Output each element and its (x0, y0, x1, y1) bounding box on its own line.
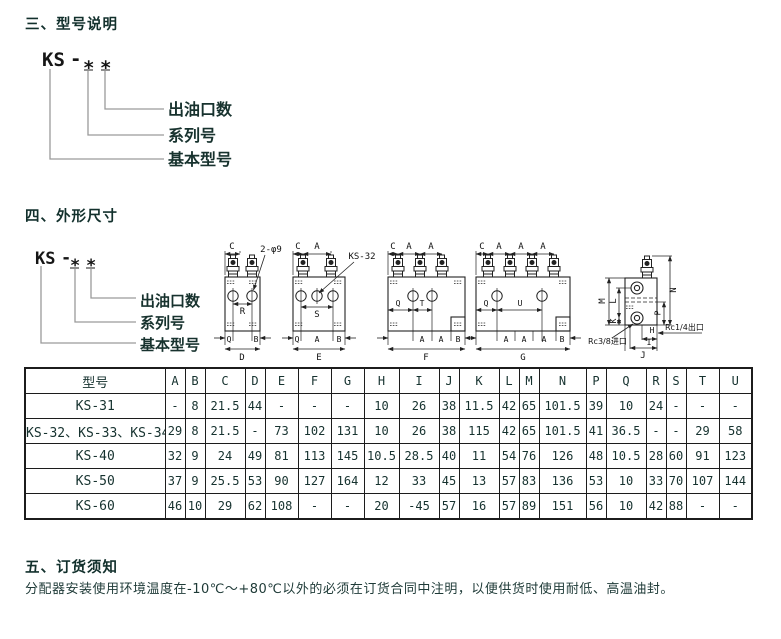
model-designation-diagram-small: KS - * * 出油口数 系列号 基本型号 (30, 244, 240, 356)
outlet-count-label: 出油口数 (168, 100, 233, 119)
dim-cell: 24 (646, 394, 666, 419)
dim-cell: 113 (298, 444, 331, 469)
dim-cell: 41 (586, 419, 606, 444)
col-header: S (666, 368, 686, 394)
model-code-prefix: KS (35, 249, 55, 269)
model-cell: KS-60 (25, 494, 165, 520)
model-cell: KS-32、KS-33、KS-34 (25, 419, 165, 444)
connector-outlet (91, 269, 136, 298)
dim-cell: 108 (265, 494, 298, 520)
dim-cell: 38 (439, 394, 459, 419)
dim-cell: 29 (686, 419, 719, 444)
col-header: L (499, 368, 519, 394)
dim-label: A (542, 335, 547, 344)
dim-cell: 89 (519, 494, 539, 520)
dim-label: C (295, 242, 300, 252)
dim-label: M (598, 298, 608, 304)
dim-label: A (315, 335, 320, 344)
dim-label: A (428, 242, 434, 252)
connector-base (50, 69, 164, 159)
dim-cell: 10.5 (606, 444, 646, 469)
dim-label: B (254, 335, 259, 344)
dim-cell: -45 (399, 494, 439, 520)
dim-cell: 91 (686, 444, 719, 469)
dim-cell: 57 (499, 469, 519, 494)
dim-cell: 83 (519, 469, 539, 494)
dim-cell: 115 (459, 419, 499, 444)
dim-cell: 28.5 (399, 444, 439, 469)
dim-cell: 42 (499, 394, 519, 419)
dim-cell: 11 (459, 444, 499, 469)
dim-label: P (654, 310, 663, 315)
dim-label: A (522, 335, 527, 344)
dim-cell: 53 (245, 469, 265, 494)
dim-cell: 42 (646, 494, 666, 520)
dim-cell: 60 (666, 444, 686, 469)
dim-cell: 8 (185, 419, 205, 444)
dim-label: B (560, 335, 565, 344)
model-code-prefix: KS (42, 49, 65, 71)
dim-label: A (540, 242, 546, 252)
table-row: KS-5037925.55390127164123345135783136531… (25, 469, 752, 494)
col-header: E (265, 368, 298, 394)
dim-cell: 25.5 (205, 469, 245, 494)
base-model-label: 基本型号 (139, 336, 200, 354)
dim-cell: 42 (499, 419, 519, 444)
dim-cell: 10 (364, 419, 399, 444)
dim-cell: 10.5 (364, 444, 399, 469)
dim-cell: 90 (265, 469, 298, 494)
col-header: M (519, 368, 539, 394)
dim-cell: - (719, 394, 752, 419)
dim-cell: - (686, 394, 719, 419)
dim-label: L (609, 298, 619, 303)
col-header: Q (606, 368, 646, 394)
col-header: F (298, 368, 331, 394)
dim-label: C (390, 242, 395, 252)
drawing-ks32: C A KS-32 S Q A B E (282, 242, 376, 363)
dim-cell: 40 (439, 444, 459, 469)
model-callout: KS-32 (348, 252, 375, 262)
dim-label: Q (227, 335, 232, 344)
dim-cell: 20 (364, 494, 399, 520)
dim-label: E (316, 353, 321, 363)
dim-cell: - (165, 394, 185, 419)
model-designation-diagram: KS - * * 出油口数 系列号 基本型号 (38, 44, 268, 176)
dim-cell: 62 (245, 494, 265, 520)
col-header: P (586, 368, 606, 394)
dim-cell: 127 (298, 469, 331, 494)
dim-cell: 10 (606, 394, 646, 419)
col-header: U (719, 368, 752, 394)
dim-cell: 11.5 (459, 394, 499, 419)
col-header: T (686, 368, 719, 394)
dim-cell: 131 (331, 419, 364, 444)
dim-cell: 45 (439, 469, 459, 494)
dim-label: A (406, 242, 412, 252)
inlet-port-label: Rc3/8进口 (588, 337, 627, 346)
dim-cell: 65 (519, 419, 539, 444)
dim-cell: 123 (719, 444, 752, 469)
dim-cell: 10 (364, 394, 399, 419)
dim-cell: 54 (499, 444, 519, 469)
dim-label: N (669, 287, 679, 292)
holes-callout: 2-φ9 (260, 245, 282, 255)
col-header: B (185, 368, 205, 394)
dim-cell: 70 (666, 469, 686, 494)
dim-cell: - (666, 419, 686, 444)
table-row: KS-32、KS-33、KS-3429821.5-731021311026381… (25, 419, 752, 444)
dim-cell: - (686, 494, 719, 520)
dim-label: B (456, 335, 461, 344)
dim-cell: 58 (719, 419, 752, 444)
dim-label: J (640, 351, 645, 361)
dim-cell: 49 (245, 444, 265, 469)
dim-cell: 16 (459, 494, 499, 520)
dim-cell: 21.5 (205, 419, 245, 444)
col-header-model: 型号 (25, 368, 165, 394)
dim-cell: 9 (185, 444, 205, 469)
col-header: R (646, 368, 666, 394)
dim-cell: 33 (399, 469, 439, 494)
col-header: N (539, 368, 586, 394)
dim-label: B (337, 335, 342, 344)
dim-cell: 81 (265, 444, 298, 469)
dim-cell: 164 (331, 469, 364, 494)
dim-cell: - (298, 494, 331, 520)
dim-label: S (314, 310, 319, 320)
dim-cell: 13 (459, 469, 499, 494)
dim-cell: 8 (185, 394, 205, 419)
dim-label: G (520, 353, 525, 363)
model-cell: KS-31 (25, 394, 165, 419)
model-code-star1: * (83, 57, 94, 79)
drawing-four-outlet: C A A A Q U A A A B G (465, 242, 581, 363)
model-cell: KS-50 (25, 469, 165, 494)
drawing-two-outlet: C 2-φ9 R Q B D (214, 242, 282, 363)
series-number-label: 系列号 (168, 126, 216, 145)
table-row: KS-6046102962108--20-4557165789151561042… (25, 494, 752, 520)
drawing-three-outlet: C A A Q T A A B F (377, 242, 476, 363)
dim-cell: 10 (185, 494, 205, 520)
dim-cell: 12 (364, 469, 399, 494)
dim-cell: 76 (519, 444, 539, 469)
dim-label: H (650, 326, 655, 335)
dim-cell: 38 (439, 419, 459, 444)
ordering-note-text: 分配器安装使用环境温度在-10℃～+80℃以外的必须在订货合同中注明，以便供货时… (25, 578, 674, 597)
dim-label: A (518, 242, 524, 252)
dim-cell: - (719, 494, 752, 520)
dim-label: Q (396, 299, 401, 308)
dim-cell: 151 (539, 494, 586, 520)
dim-cell: 32 (165, 444, 185, 469)
dim-cell: 48 (586, 444, 606, 469)
dim-label: A (504, 335, 509, 344)
dim-cell: 26 (399, 394, 439, 419)
dim-cell: 53 (586, 469, 606, 494)
drawing-side-view: M L K N P H I J Rc3/8进口 Rc1/4出口 (588, 256, 704, 361)
dim-cell: 10 (606, 494, 646, 520)
dim-cell: 102 (298, 419, 331, 444)
dim-cell: 28 (646, 444, 666, 469)
dim-cell: - (331, 394, 364, 419)
dim-cell: 36.5 (606, 419, 646, 444)
section5-title: 五、订货须知 (25, 556, 118, 577)
dim-cell: 144 (719, 469, 752, 494)
dim-cell: 136 (539, 469, 586, 494)
spec-table: 型号ABCDEFGHIJKLMNPQRSTU KS-31-821.544---1… (24, 367, 753, 520)
dim-label: Q (295, 335, 300, 344)
dim-cell: - (245, 419, 265, 444)
dim-cell: 57 (499, 494, 519, 520)
dim-cell: 24 (205, 444, 245, 469)
model-code-star2: * (100, 57, 111, 79)
spec-table-body: KS-31-821.544---10263811.54265101.539102… (25, 394, 752, 520)
dim-label: A (420, 335, 425, 344)
dim-cell: 88 (666, 494, 686, 520)
dim-cell: 145 (331, 444, 364, 469)
col-header: K (459, 368, 499, 394)
col-header: C (205, 368, 245, 394)
model-code-dash: - (70, 48, 81, 70)
dim-cell: 57 (439, 494, 459, 520)
section3-title: 三、型号说明 (25, 13, 118, 34)
dim-label: I (647, 338, 652, 347)
dim-cell: 9 (185, 469, 205, 494)
col-header: I (399, 368, 439, 394)
col-header: D (245, 368, 265, 394)
dim-cell: 107 (686, 469, 719, 494)
col-header: H (364, 368, 399, 394)
dim-cell: 56 (586, 494, 606, 520)
connector-series (88, 71, 164, 135)
dim-cell: 39 (586, 394, 606, 419)
base-model-label: 基本型号 (167, 150, 232, 169)
table-row: KS-31-821.544---10263811.54265101.539102… (25, 394, 752, 419)
dim-cell: 29 (205, 494, 245, 520)
dim-label: T (420, 299, 425, 308)
dim-cell: 73 (265, 419, 298, 444)
dim-cell: 26 (399, 419, 439, 444)
col-header: G (331, 368, 364, 394)
dim-cell: 101.5 (539, 394, 586, 419)
dim-cell: 10 (606, 469, 646, 494)
dim-label: D (239, 353, 244, 363)
dim-label: F (423, 353, 428, 363)
dim-label: K (609, 318, 618, 323)
header-row: 型号ABCDEFGHIJKLMNPQRSTU (25, 368, 752, 394)
dim-cell: 29 (165, 419, 185, 444)
dim-label: A (439, 335, 444, 344)
col-header: A (165, 368, 185, 394)
dim-label: U (518, 299, 523, 308)
dim-cell: 65 (519, 394, 539, 419)
dim-cell: 101.5 (539, 419, 586, 444)
datasheet-page: 三、型号说明 KS - * * 出油口数 系列号 基本型号 四、外形尺寸 KS … (0, 0, 781, 639)
dim-label: C (479, 242, 484, 252)
table-row: KS-4032924498111314510.528.5401154761264… (25, 444, 752, 469)
dim-cell: - (331, 494, 364, 520)
dim-label: A (314, 242, 320, 252)
dim-cell: 44 (245, 394, 265, 419)
dim-label: Q (484, 299, 489, 308)
dim-cell: - (298, 394, 331, 419)
dim-cell: - (265, 394, 298, 419)
dim-label: R (240, 307, 246, 317)
dim-cell: - (646, 419, 666, 444)
dim-cell: 126 (539, 444, 586, 469)
dim-cell: - (666, 394, 686, 419)
dimension-drawings: C 2-φ9 R Q B D C A KS-32 (210, 238, 781, 368)
dim-label: A (496, 242, 502, 252)
connector-outlet (105, 71, 164, 109)
connector-series (75, 269, 136, 322)
dim-label: C (229, 242, 234, 252)
series-number-label: 系列号 (140, 314, 185, 332)
dim-cell: 46 (165, 494, 185, 520)
connector-base (41, 266, 136, 343)
dim-cell: 37 (165, 469, 185, 494)
outlet-count-label: 出油口数 (140, 292, 201, 310)
dim-cell: 21.5 (205, 394, 245, 419)
col-header: J (439, 368, 459, 394)
section4-title: 四、外形尺寸 (25, 205, 118, 226)
spec-table-head: 型号ABCDEFGHIJKLMNPQRSTU (25, 368, 752, 394)
outlet-port-label: Rc1/4出口 (665, 322, 704, 332)
dim-cell: 33 (646, 469, 666, 494)
model-cell: KS-40 (25, 444, 165, 469)
